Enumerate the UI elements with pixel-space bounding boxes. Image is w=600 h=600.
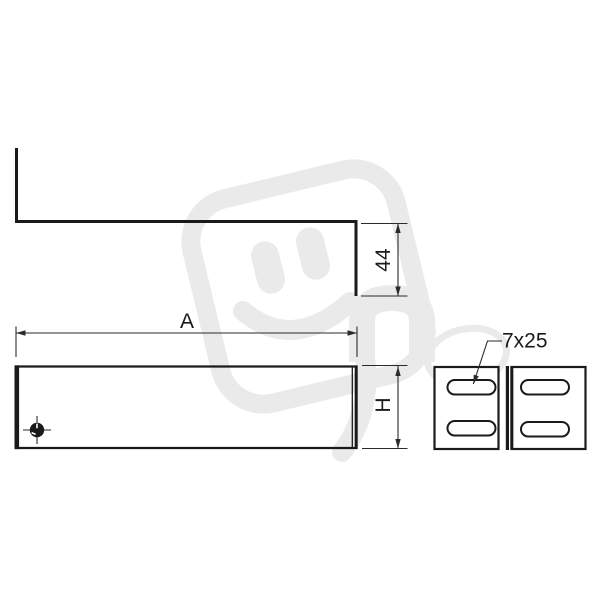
front-view-bracket: [15, 365, 358, 449]
dim-A-label: A: [180, 310, 194, 333]
dim-H-label: H: [372, 397, 395, 412]
hole-center-marker: [23, 416, 51, 444]
technical-drawing-svg: 44 A: [0, 0, 600, 600]
watermark-left-eye: [248, 238, 288, 296]
dim-H-arrow-down: [395, 439, 400, 449]
slot-left-top: [448, 380, 496, 395]
dim-44-label: 44: [372, 248, 395, 272]
end-view-divider-right: [510, 366, 513, 450]
slot-size-label: 7x25: [502, 330, 548, 353]
watermark-cord: [342, 358, 366, 452]
dimension-width-A: A: [16, 310, 357, 357]
drawing-canvas: 44 A: [0, 0, 600, 600]
end-view-divider-left: [506, 366, 509, 450]
dim-A-arrow-left: [16, 330, 26, 335]
slot-right-top: [521, 380, 569, 395]
front-view-left-flange: [15, 365, 20, 449]
watermark-right-eye: [293, 224, 333, 282]
slot-left-bottom: [448, 421, 496, 436]
watermark-smile: [243, 302, 350, 330]
end-view-coupler: 7x25: [435, 330, 586, 451]
slot-right-bottom: [521, 422, 569, 437]
